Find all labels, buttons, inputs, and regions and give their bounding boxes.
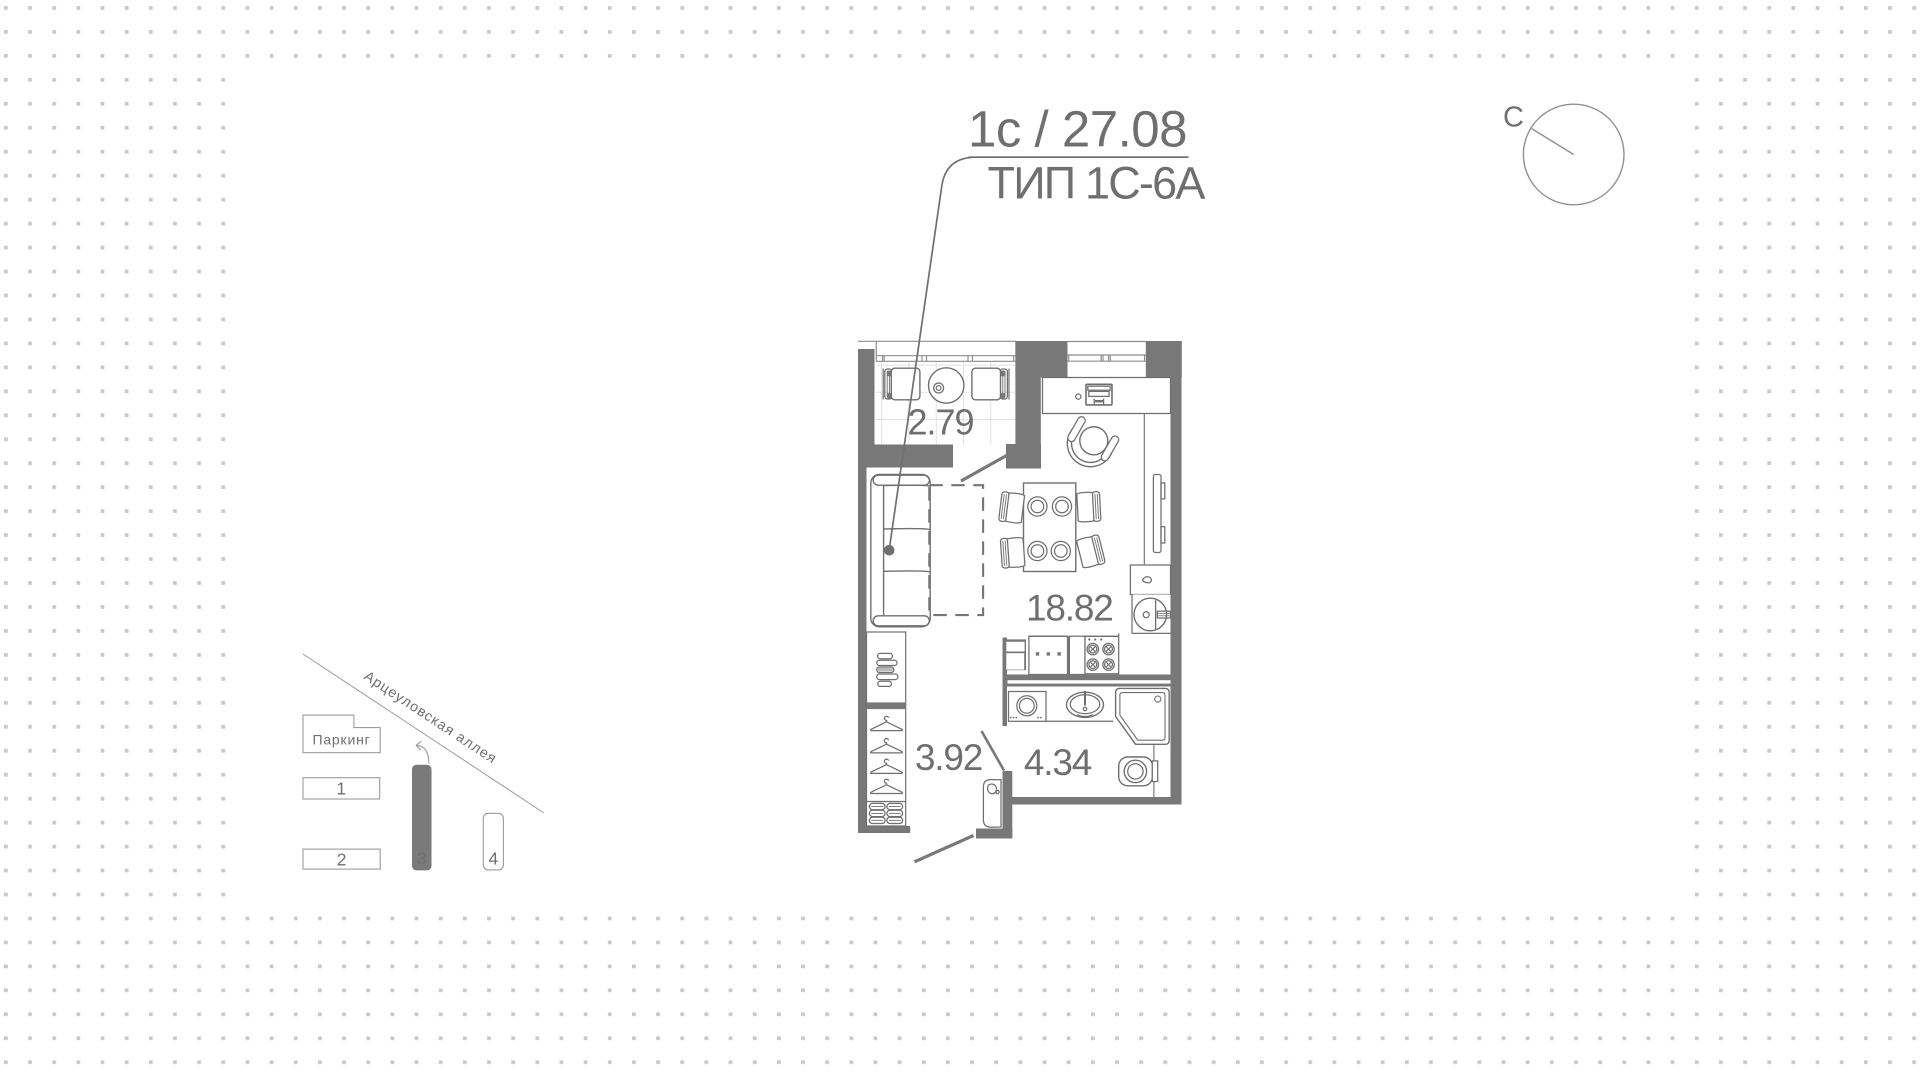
svg-text:С: С bbox=[1503, 102, 1524, 134]
svg-text:4.34: 4.34 bbox=[1024, 742, 1092, 783]
svg-text:Паркинг: Паркинг bbox=[312, 731, 370, 747]
svg-text:1с / 27.08: 1с / 27.08 bbox=[968, 101, 1187, 158]
svg-text:3: 3 bbox=[417, 848, 427, 868]
svg-text:ТИП 1С-6А: ТИП 1С-6А bbox=[988, 158, 1206, 209]
svg-text:3.92: 3.92 bbox=[915, 737, 982, 778]
svg-text:2: 2 bbox=[337, 849, 347, 869]
svg-text:1: 1 bbox=[336, 778, 346, 798]
svg-text:4: 4 bbox=[489, 848, 499, 868]
svg-text:18.82: 18.82 bbox=[1026, 588, 1113, 629]
svg-text:2.79: 2.79 bbox=[907, 402, 973, 443]
